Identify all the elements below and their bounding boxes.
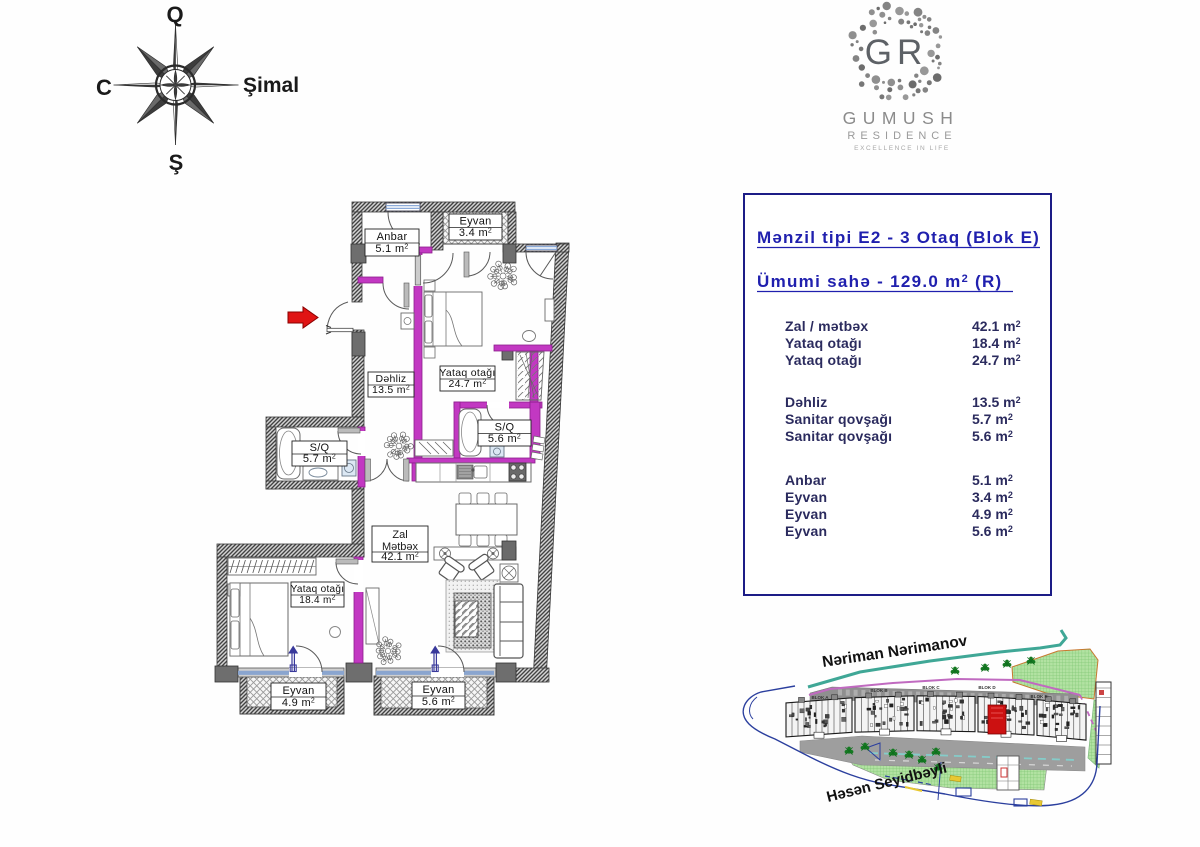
- svg-text:BLOK E: BLOK E: [1030, 694, 1047, 699]
- svg-text:Zal: Zal: [392, 529, 407, 541]
- svg-text:Sanitar qovşağı: Sanitar qovşağı: [785, 428, 892, 444]
- svg-text:Yataq otağı: Yataq otağı: [291, 584, 345, 595]
- svg-text:5.1 m2: 5.1 m2: [375, 243, 408, 255]
- svg-text:24.7 m2: 24.7 m2: [972, 352, 1021, 368]
- svg-text:BLOK B: BLOK B: [870, 688, 888, 693]
- svg-text:GR: GR: [865, 33, 928, 72]
- svg-text:5.6 m2: 5.6 m2: [422, 696, 455, 708]
- svg-text:EXCELLENCE IN LIFE: EXCELLENCE IN LIFE: [854, 145, 950, 152]
- svg-text:42.1 m2: 42.1 m2: [972, 318, 1021, 334]
- svg-text:5.6 m2: 5.6 m2: [972, 523, 1013, 539]
- svg-text:S/Q: S/Q: [495, 422, 515, 434]
- svg-text:Mənzil tipi E2 - 3 Otaq (Blok: Mənzil tipi E2 - 3 Otaq (Blok E): [757, 228, 1040, 247]
- svg-text:Şimal: Şimal: [243, 74, 299, 97]
- svg-text:5.7 m2: 5.7 m2: [972, 411, 1013, 427]
- svg-text:4.9 m2: 4.9 m2: [972, 506, 1013, 522]
- svg-text:GUMUSH: GUMUSH: [843, 108, 960, 128]
- svg-text:BLOK D: BLOK D: [978, 685, 996, 690]
- svg-text:Eyvan: Eyvan: [785, 523, 827, 539]
- svg-text:RESIDENCE: RESIDENCE: [847, 130, 956, 142]
- svg-text:3.4 m2: 3.4 m2: [972, 489, 1013, 505]
- svg-text:5.6 m2: 5.6 m2: [972, 428, 1013, 444]
- svg-text:BLOK C: BLOK C: [922, 685, 940, 690]
- svg-text:Anbar: Anbar: [785, 472, 827, 488]
- svg-text:42.1 m2: 42.1 m2: [381, 551, 419, 563]
- svg-text:Sanitar qovşağı: Sanitar qovşağı: [785, 411, 892, 427]
- svg-text:Eyvan: Eyvan: [459, 216, 491, 228]
- svg-text:Q: Q: [166, 2, 183, 27]
- svg-text:Eyvan: Eyvan: [422, 684, 454, 696]
- svg-text:Yataq otağı: Yataq otağı: [785, 352, 862, 368]
- svg-text:13.5 m2: 13.5 m2: [972, 394, 1021, 410]
- svg-text:13.5 m2: 13.5 m2: [372, 384, 410, 396]
- svg-text:Dəhliz: Dəhliz: [785, 394, 827, 410]
- svg-text:5.6 m2: 5.6 m2: [488, 433, 521, 445]
- svg-text:24.7 m2: 24.7 m2: [448, 378, 486, 390]
- svg-text:4.9 m2: 4.9 m2: [282, 697, 315, 709]
- svg-text:Zal / mətbəx: Zal / mətbəx: [785, 318, 868, 334]
- svg-text:Ş: Ş: [169, 150, 184, 175]
- svg-text:5.7 m2: 5.7 m2: [303, 453, 336, 465]
- svg-text:18.4 m2: 18.4 m2: [299, 595, 336, 607]
- svg-text:18.4 m2: 18.4 m2: [972, 335, 1021, 351]
- svg-text:BLOK A: BLOK A: [811, 695, 829, 700]
- svg-text:Yataq otağı: Yataq otağı: [785, 335, 862, 351]
- svg-text:3.4 m2: 3.4 m2: [459, 227, 492, 239]
- svg-text:Eyvan: Eyvan: [282, 685, 314, 697]
- svg-text:Eyvan: Eyvan: [785, 489, 827, 505]
- svg-text:5.1 m2: 5.1 m2: [972, 472, 1013, 488]
- svg-text:Anbar: Anbar: [377, 231, 408, 243]
- svg-text:C: C: [96, 75, 112, 100]
- svg-text:Eyvan: Eyvan: [785, 506, 827, 522]
